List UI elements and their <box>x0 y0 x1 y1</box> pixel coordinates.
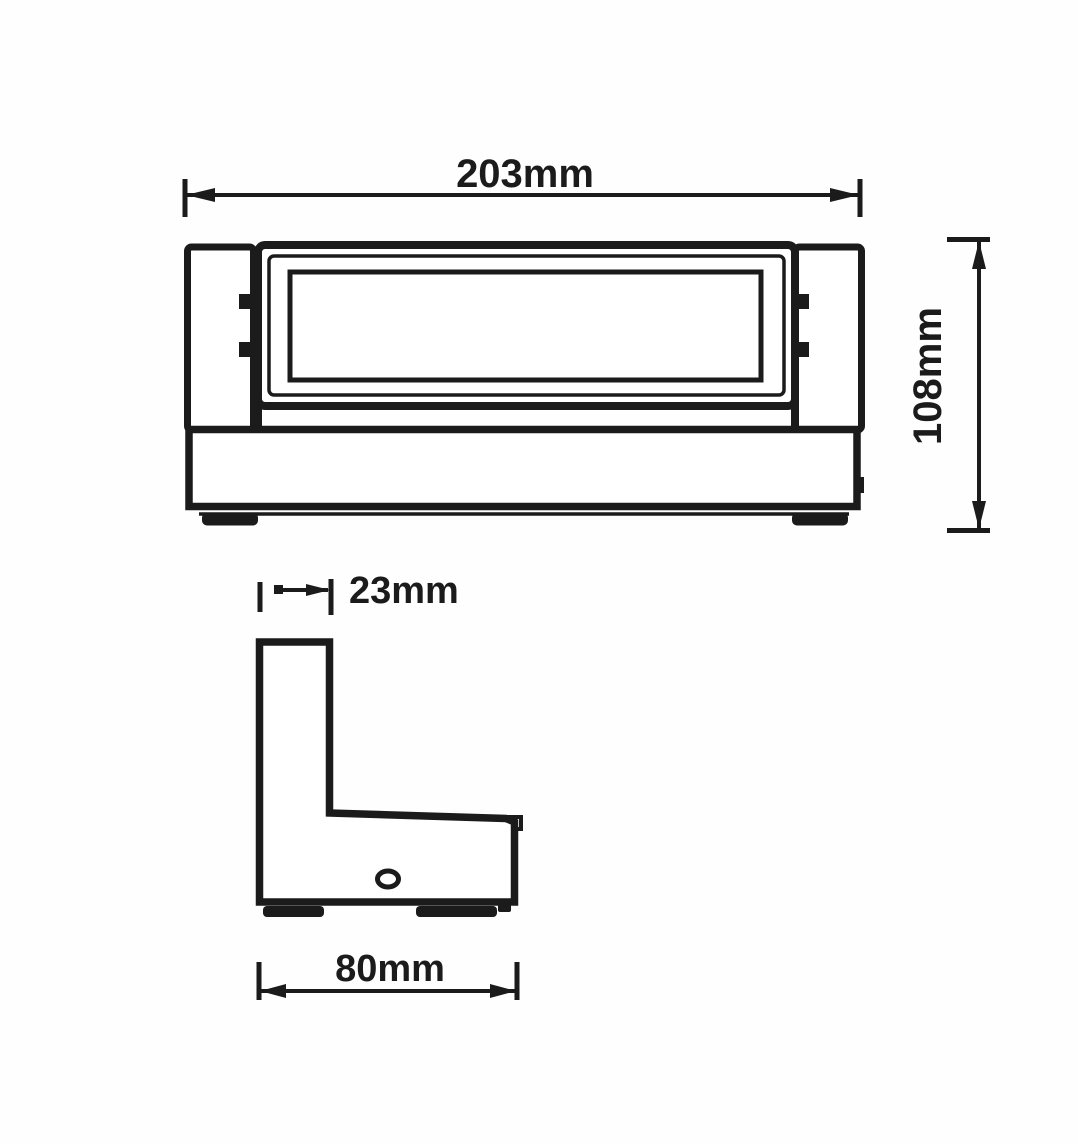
arrowhead-left <box>186 188 215 202</box>
mounting-base <box>189 430 857 507</box>
front-view <box>188 245 865 526</box>
dim-side-depth: 80mm <box>259 948 517 1000</box>
dim-front-width: 203mm <box>185 152 860 217</box>
arrowhead-top <box>972 241 986 269</box>
dim-front-height: 108mm <box>906 240 990 531</box>
base-foot-right <box>792 513 848 526</box>
side-view <box>260 642 522 917</box>
arrowhead-right <box>830 188 859 202</box>
arrowhead-right <box>306 584 330 596</box>
left-cap-notch-top <box>239 294 254 309</box>
left-end-cap <box>188 247 254 430</box>
side-bottom-corner-mark <box>498 903 511 912</box>
technical-drawing-canvas: 203mm 108mm <box>0 0 1078 1144</box>
l-profile-outline <box>260 642 515 902</box>
dim-label-front-height: 108mm <box>906 307 950 445</box>
arrowhead-left <box>260 984 286 998</box>
light-diffuser-window <box>290 272 761 380</box>
dim-side-top-width: 23mm <box>260 570 459 615</box>
base-right-edge-tab <box>855 477 864 493</box>
side-foot-left <box>263 906 324 917</box>
base-foot-left <box>202 513 258 526</box>
left-cap-notch-bottom <box>239 342 254 357</box>
arrowhead-bottom <box>972 501 986 529</box>
side-foot-right <box>416 906 497 917</box>
arrowhead-right <box>490 984 516 998</box>
dim-label-front-width: 203mm <box>456 152 594 196</box>
dim-label-side-depth: 80mm <box>335 948 445 990</box>
cable-hole <box>378 871 399 887</box>
drawing-svg: 203mm 108mm <box>0 0 1078 1144</box>
dimension-line-origin-dot <box>274 585 283 594</box>
right-end-cap <box>796 247 862 430</box>
dim-label-side-top-width: 23mm <box>349 570 459 612</box>
